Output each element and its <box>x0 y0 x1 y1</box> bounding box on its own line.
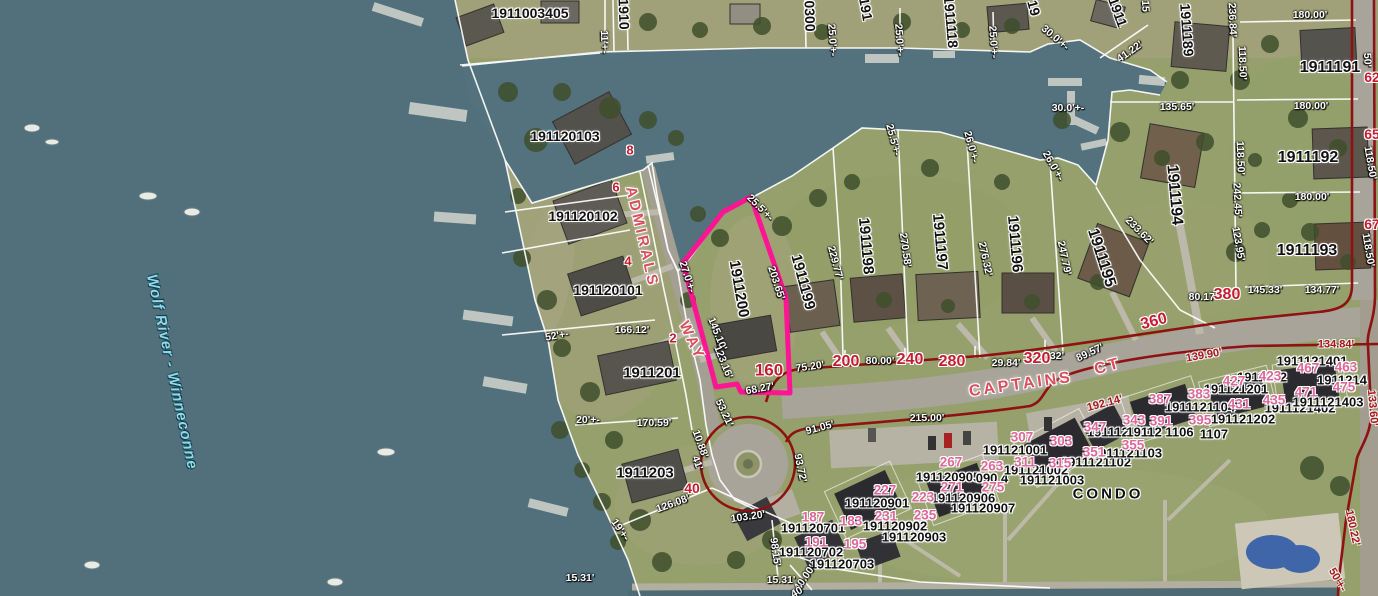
aerial-basemap <box>0 0 1378 596</box>
swimming-pool <box>1235 513 1345 590</box>
gis-parcel-map[interactable]: 1911003405191003001911911118191911191118… <box>0 0 1378 596</box>
